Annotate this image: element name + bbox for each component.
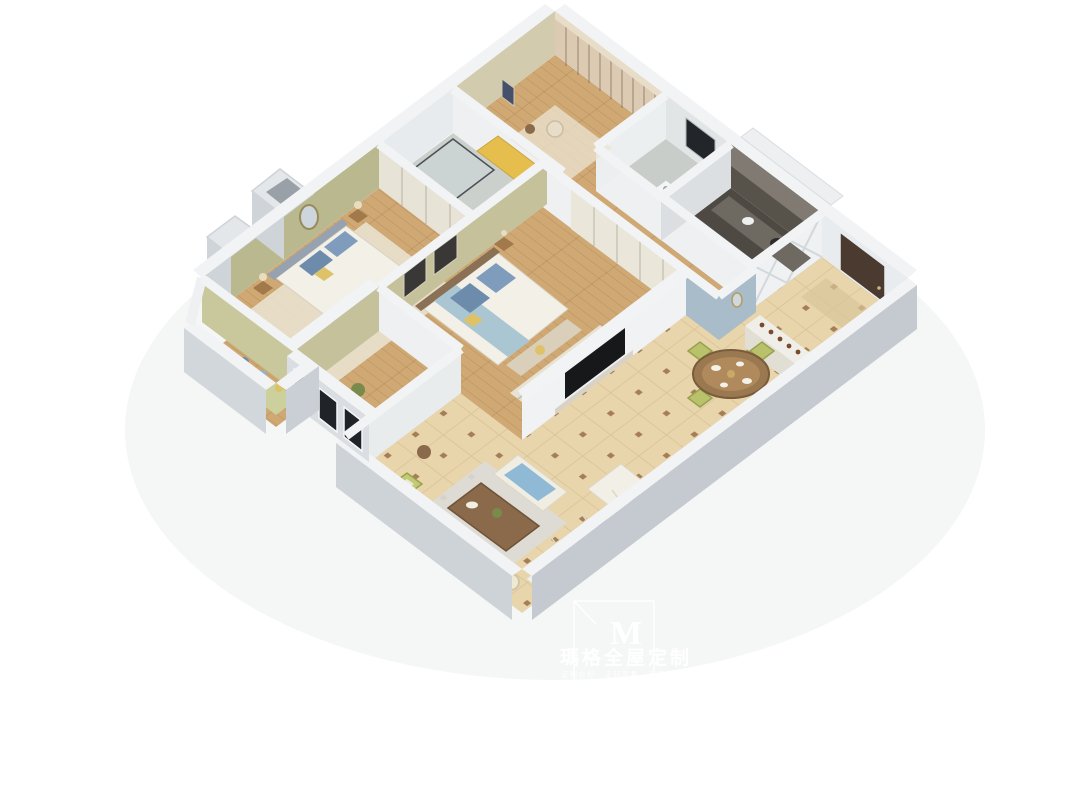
kitchen-sink	[742, 217, 754, 225]
bedside-lamp-1	[354, 201, 362, 209]
study-side-table	[525, 124, 535, 134]
table-plant	[492, 508, 502, 518]
watermark-tagline-text: 定制衣柜 · 定制家具 · 多空间定制	[561, 669, 691, 679]
table-tray	[466, 502, 478, 509]
door-knob	[877, 286, 881, 290]
apartment-3d-scene: M 瑪格全屋定制 定制衣柜 · 定制家具 · 多空间定制	[0, 0, 1080, 810]
watermark-brand-text: 瑪格全屋定制	[560, 646, 692, 669]
study-armchair	[547, 121, 563, 137]
master-wall-mirror	[300, 205, 318, 229]
corridor-round-mirror	[732, 293, 742, 307]
bench-pillow	[535, 345, 545, 355]
bedroom2-lamp	[501, 230, 507, 236]
brand-m-logo-icon: M	[610, 615, 642, 652]
bedside-lamp-2	[259, 273, 267, 281]
side-table	[417, 445, 431, 459]
table-centerpiece	[727, 370, 735, 378]
floorplan-render: M 瑪格全屋定制 定制衣柜 · 定制家具 · 多空间定制	[0, 0, 1080, 810]
